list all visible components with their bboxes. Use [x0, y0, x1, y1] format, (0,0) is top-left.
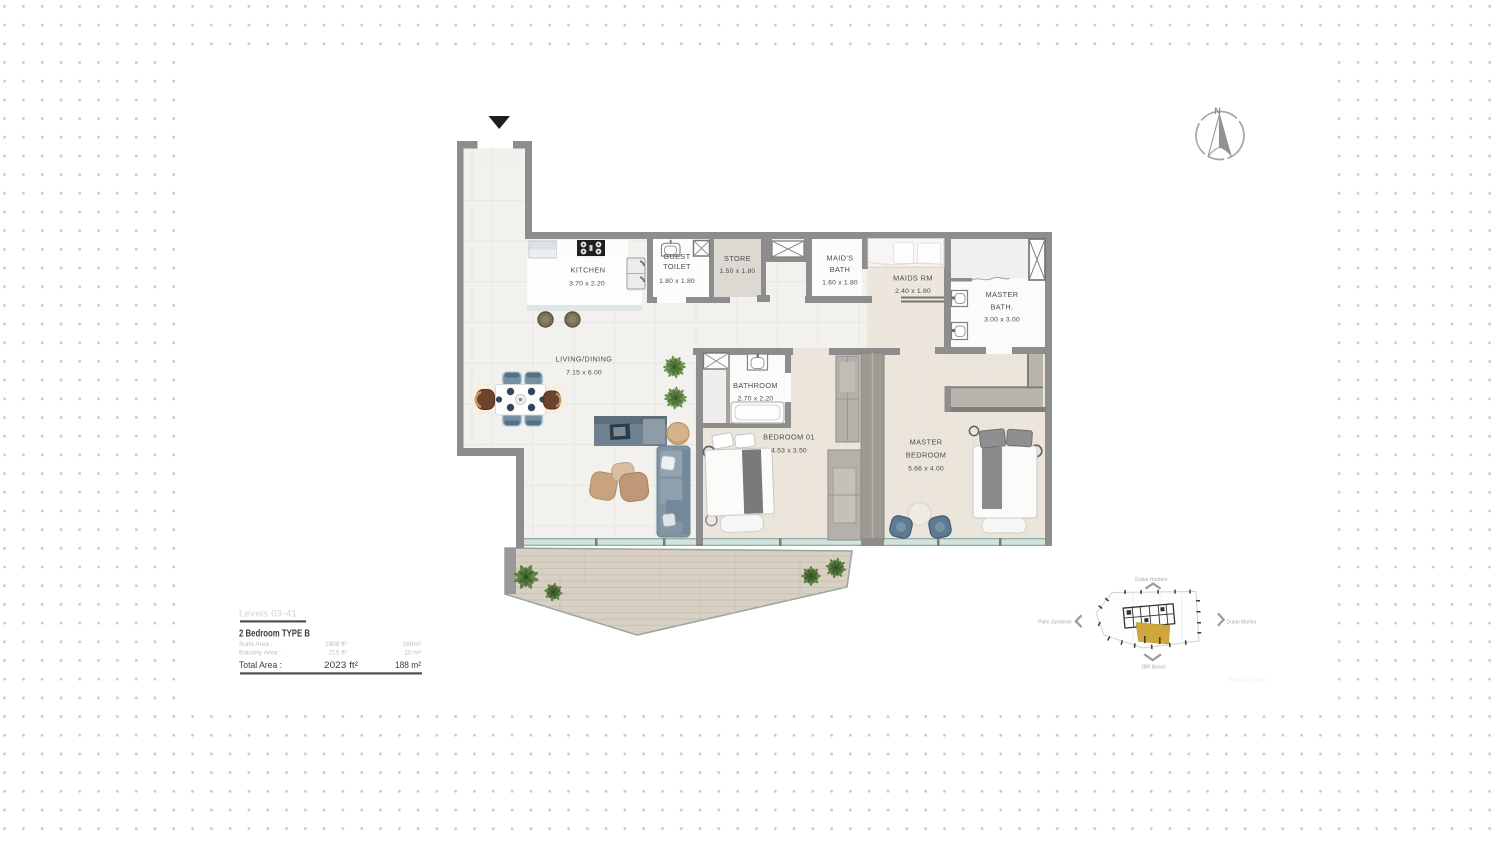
svg-text:7.15 x 6.00: 7.15 x 6.00: [566, 370, 602, 377]
svg-text:2 Bedroom TYPE B: 2 Bedroom TYPE B: [239, 629, 310, 640]
svg-text:Suite Area :: Suite Area :: [239, 641, 273, 648]
svg-text:2.70 x 2.20: 2.70 x 2.20: [738, 396, 774, 403]
svg-text:MASTER: MASTER: [910, 438, 943, 447]
svg-text:BEDROOM: BEDROOM: [906, 451, 947, 460]
svg-text:168m²: 168m²: [403, 641, 422, 648]
svg-text:2.40 x 1.80: 2.40 x 1.80: [895, 288, 931, 295]
svg-text:Total Area :: Total Area :: [239, 660, 282, 671]
svg-text:4.53 x 3.50: 4.53 x 3.50: [771, 448, 807, 455]
svg-text:1.50 x 1.80: 1.50 x 1.80: [720, 268, 756, 275]
svg-text:Beach Vista: Beach Vista: [1228, 677, 1265, 684]
svg-text:Dubai Harbour: Dubai Harbour: [1135, 577, 1168, 583]
svg-text:BATH.: BATH.: [991, 303, 1014, 312]
svg-text:188 m²: 188 m²: [395, 660, 421, 671]
svg-text:MAID'S: MAID'S: [827, 254, 854, 263]
svg-text:5.66 x 4.00: 5.66 x 4.00: [908, 466, 944, 473]
svg-text:3.70 x 2.20: 3.70 x 2.20: [569, 281, 605, 288]
svg-text:BEDROOM 01: BEDROOM 01: [763, 433, 815, 442]
svg-text:MASTER: MASTER: [986, 290, 1019, 299]
svg-text:KITCHEN: KITCHEN: [571, 266, 606, 275]
svg-text:TOILET: TOILET: [663, 262, 691, 271]
svg-text:BATHROOM: BATHROOM: [733, 381, 778, 390]
svg-text:3.00 x 3.00: 3.00 x 3.00: [984, 317, 1020, 324]
svg-text:Dubai Marina: Dubai Marina: [1227, 620, 1257, 626]
svg-text:Palm Jumeirah: Palm Jumeirah: [1038, 620, 1072, 626]
svg-text:Levels 03-41: Levels 03-41: [239, 609, 297, 620]
svg-text:GUEST: GUEST: [663, 252, 690, 261]
svg-text:20 m²: 20 m²: [404, 650, 421, 657]
svg-text:1.60 x 1.80: 1.60 x 1.80: [822, 280, 858, 287]
svg-text:BATH: BATH: [830, 265, 851, 274]
svg-text:2023 ft²: 2023 ft²: [324, 660, 358, 671]
svg-text:JBR Beach: JBR Beach: [1141, 665, 1166, 671]
svg-text:STORE: STORE: [724, 254, 751, 263]
svg-text:LIVING/DINING: LIVING/DINING: [556, 355, 613, 364]
svg-text:1808 ft²: 1808 ft²: [325, 641, 348, 648]
svg-text:MAIDS RM: MAIDS RM: [893, 274, 933, 283]
svg-text:215 ft²: 215 ft²: [329, 650, 348, 657]
svg-text:Balcony Area :: Balcony Area :: [239, 650, 281, 657]
svg-text:1.80 x 1.80: 1.80 x 1.80: [659, 278, 695, 285]
svg-text:N: N: [1214, 106, 1221, 116]
